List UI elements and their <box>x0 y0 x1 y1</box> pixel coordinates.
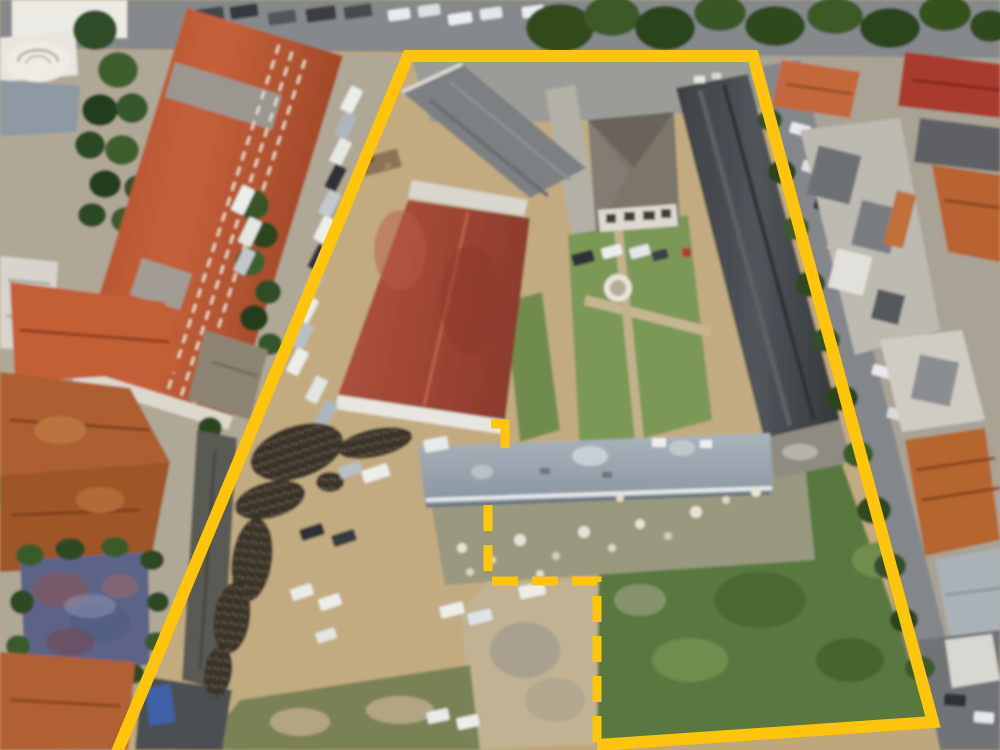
window <box>643 211 655 220</box>
debris <box>514 534 526 546</box>
roof-light-patch <box>76 487 124 513</box>
debris <box>608 544 616 552</box>
roof-vent <box>602 472 612 478</box>
sport-court <box>20 552 150 672</box>
debris <box>466 568 474 576</box>
tree-canopy <box>255 280 281 304</box>
rooftop-unit <box>694 76 705 83</box>
moto-cluster <box>316 472 344 492</box>
red-object <box>682 248 691 257</box>
rooftop-unit <box>652 438 666 447</box>
window <box>624 212 635 221</box>
bush <box>16 544 44 566</box>
bush <box>55 538 85 560</box>
gray-slab-roof <box>0 80 80 136</box>
tree-canopy <box>98 52 138 88</box>
tree-canopy <box>89 170 121 198</box>
court-worn <box>102 574 138 598</box>
court-worn <box>64 594 116 618</box>
roof-light-patch <box>471 465 493 479</box>
tree-canopy <box>78 203 106 227</box>
tree-canopy <box>240 305 268 331</box>
roof-light-patch <box>669 440 695 456</box>
tree-canopy <box>526 4 594 52</box>
lawn-shadow <box>714 572 806 628</box>
roof-light <box>374 210 426 290</box>
debris <box>552 552 560 560</box>
rooftop-unit <box>700 440 712 448</box>
tree-canopy <box>73 10 117 50</box>
rooftop-terrace <box>6 42 70 82</box>
debris <box>722 496 730 504</box>
debris <box>751 487 761 497</box>
debris <box>690 506 702 518</box>
tree-canopy <box>635 6 695 50</box>
debris <box>635 519 645 529</box>
white-shed <box>945 634 1000 688</box>
bush <box>10 590 34 614</box>
tree-canopy <box>745 6 805 46</box>
tree-canopy <box>82 94 118 126</box>
round-well-center <box>610 280 626 296</box>
bush <box>147 592 169 612</box>
debris <box>664 532 672 540</box>
dirt-patch <box>270 708 330 736</box>
tree-canopy <box>116 93 148 123</box>
junk-detail <box>385 163 391 169</box>
tree-canopy <box>860 8 920 48</box>
gray-hip-house <box>588 112 680 232</box>
lawn-light <box>652 638 728 682</box>
tree-canopy <box>75 131 105 159</box>
excluded-parcel-patch <box>525 678 585 722</box>
debris <box>616 494 624 502</box>
photo-layer <box>0 0 1000 750</box>
court-worn <box>46 628 94 656</box>
roof-vent <box>540 468 550 474</box>
rooftop-unit <box>712 73 721 79</box>
roof-shading <box>440 245 500 355</box>
roof-light-patch <box>34 416 86 444</box>
window <box>661 209 671 218</box>
bush <box>140 550 164 570</box>
aerial-photo-svg <box>0 0 1000 750</box>
tree-canopy <box>105 135 139 165</box>
window <box>606 214 616 223</box>
excluded-parcel-patch <box>490 622 560 678</box>
car <box>944 693 967 707</box>
lawn-shadow <box>816 638 884 682</box>
lawn-pale-patch <box>614 584 666 616</box>
debris <box>457 543 467 553</box>
roof-light-patch <box>572 446 608 466</box>
dirt-patch <box>366 696 434 724</box>
debris <box>578 526 590 538</box>
car <box>974 711 995 724</box>
ruin-debris <box>782 444 818 460</box>
bush <box>101 537 129 557</box>
aerial-photo-canvas <box>0 0 1000 750</box>
